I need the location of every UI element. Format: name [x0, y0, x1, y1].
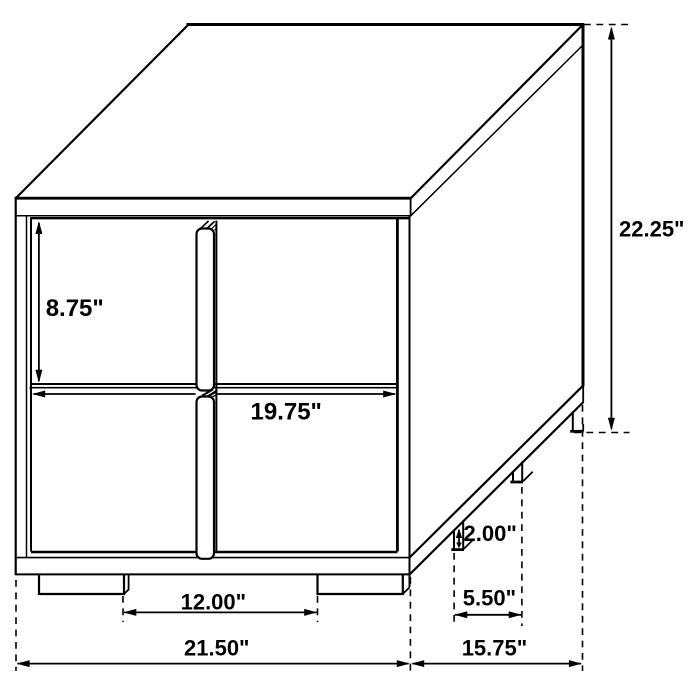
svg-text:19.75": 19.75" — [251, 399, 322, 426]
svg-text:21.50": 21.50" — [184, 635, 249, 660]
svg-text:5.50": 5.50" — [463, 586, 516, 611]
svg-text:12.00": 12.00" — [181, 589, 246, 614]
svg-text:22.25": 22.25" — [619, 216, 684, 241]
svg-text:8.75": 8.75" — [46, 295, 104, 322]
svg-text:2.00": 2.00" — [464, 521, 517, 546]
svg-text:15.75": 15.75" — [462, 636, 527, 661]
